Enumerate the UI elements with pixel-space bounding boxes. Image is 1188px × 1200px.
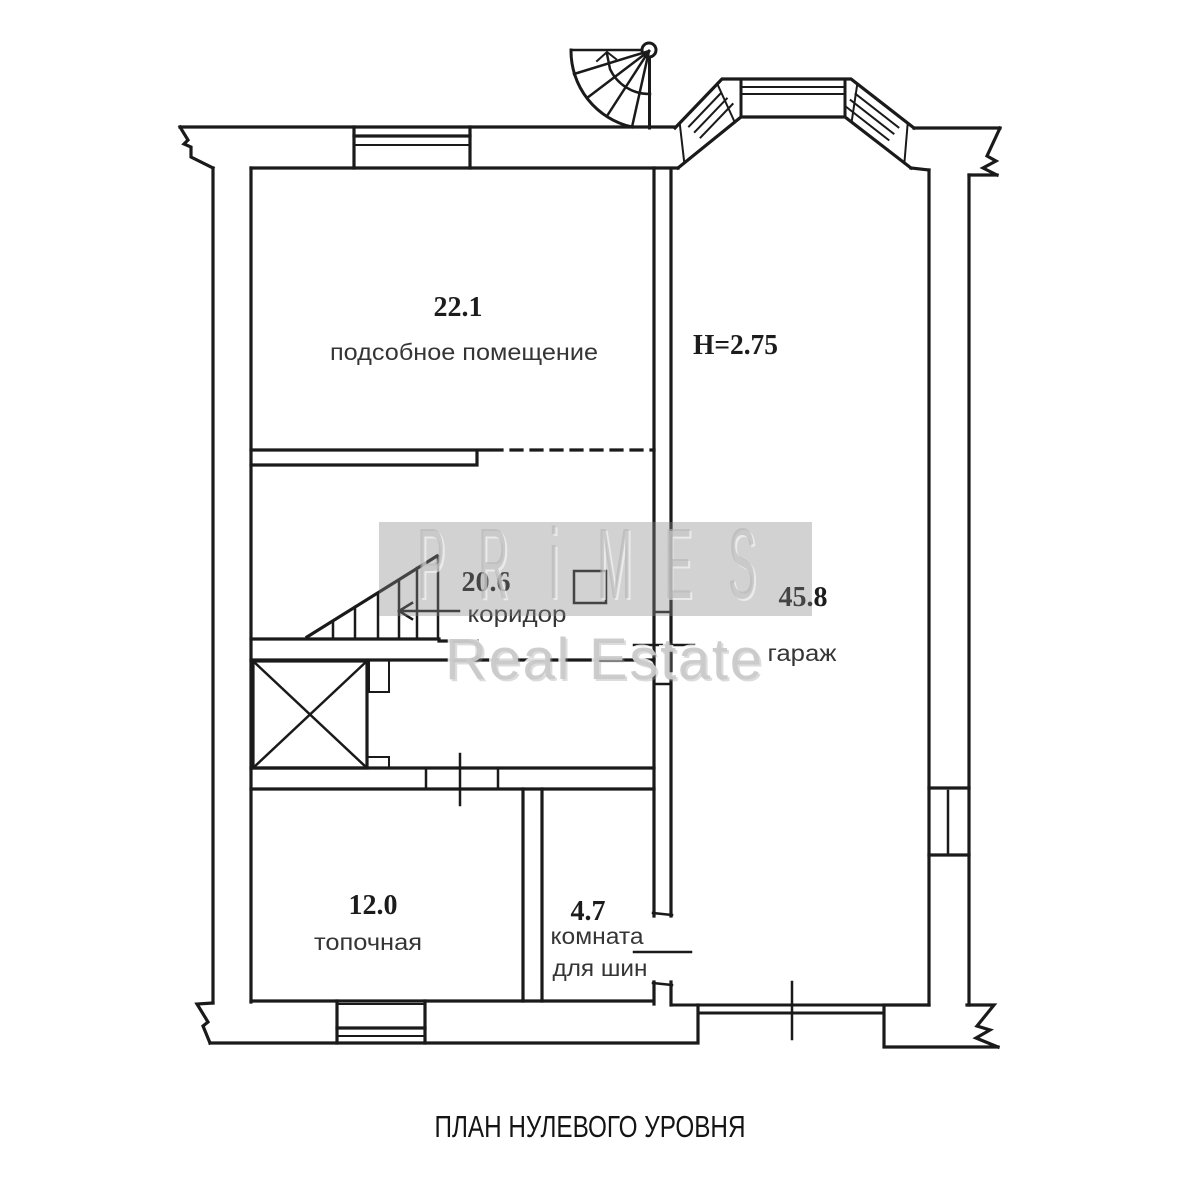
svg-text:S: S (728, 509, 756, 620)
svg-text:12.0: 12.0 (349, 890, 398, 921)
svg-text:E: E (664, 509, 692, 620)
svg-text:подсобное помещение: подсобное помещение (330, 339, 598, 365)
svg-text:P: P (417, 509, 445, 620)
svg-text:ПЛАН НУЛЕВОГО УРОВНЯ: ПЛАН НУЛЕВОГО УРОВНЯ (435, 1109, 746, 1144)
svg-text:H=2.75: H=2.75 (693, 329, 778, 361)
svg-text:комната: комната (551, 923, 644, 949)
svg-text:Real Estate: Real Estate (445, 627, 762, 692)
svg-text:i: i (549, 509, 558, 620)
svg-text:топочная: топочная (314, 929, 422, 955)
svg-text:R: R (478, 509, 508, 620)
svg-text:22.1: 22.1 (434, 292, 483, 323)
svg-text:M: M (597, 509, 632, 620)
svg-text:гараж: гараж (768, 640, 838, 666)
svg-text:для шин: для шин (553, 955, 648, 981)
